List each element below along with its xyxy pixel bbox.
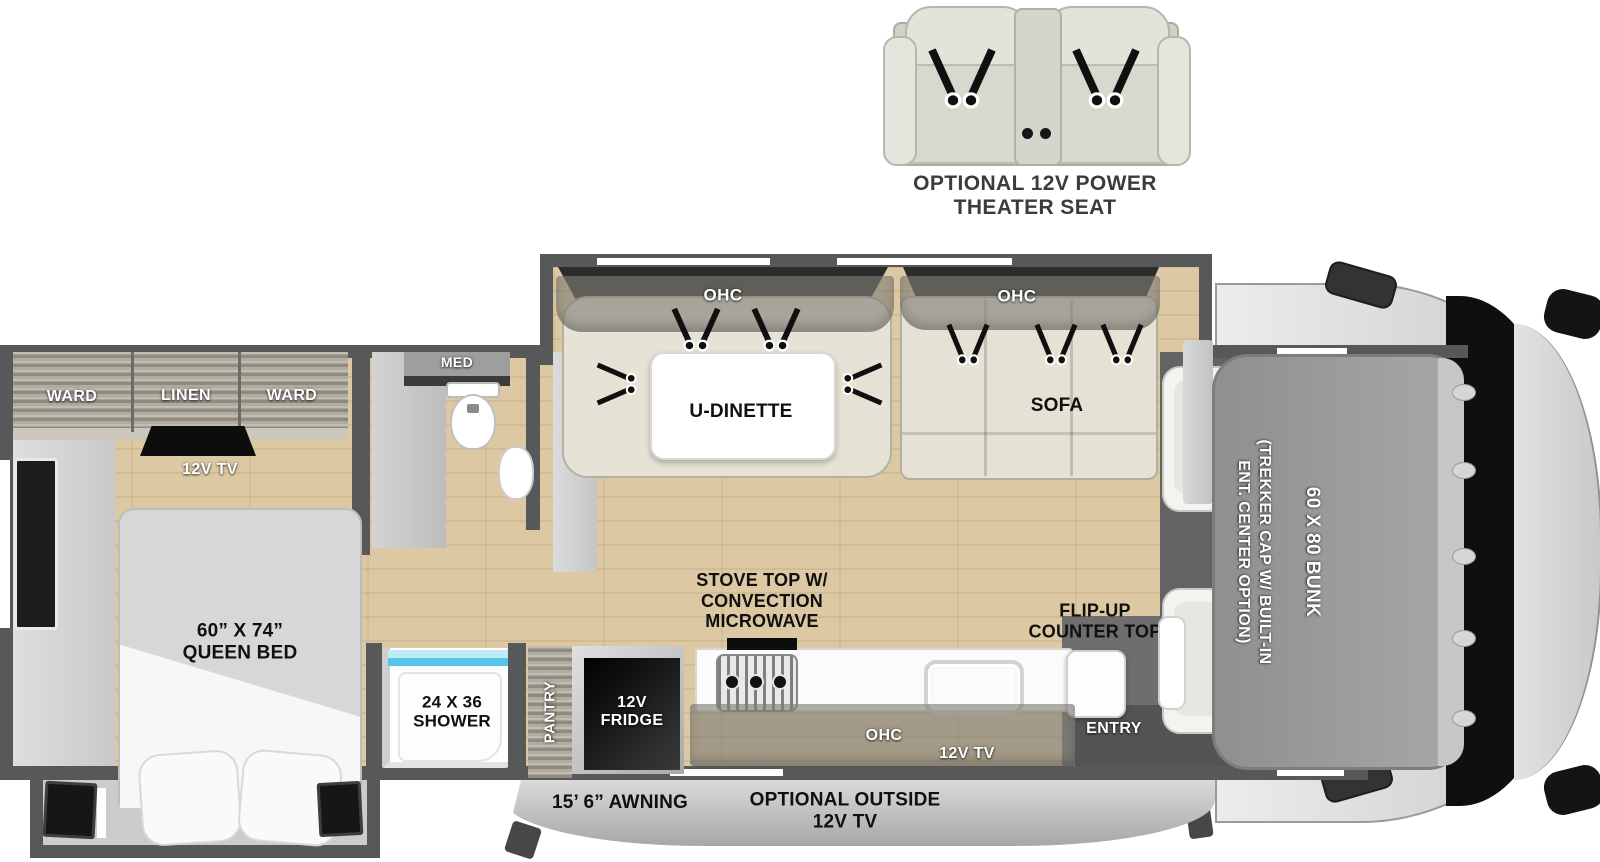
theater-armrest-left: [883, 36, 917, 166]
sofa-label: SOFA: [1031, 395, 1084, 417]
theater-cupholder-right: [1040, 128, 1051, 139]
bed-pillow-left: [137, 749, 243, 848]
seat-belt-icon: [840, 356, 884, 412]
toilet-bowl: [450, 394, 496, 450]
fridge-label: 12V FRIDGE: [601, 694, 664, 730]
window-rear-wall: [0, 460, 10, 628]
bunk-size-label: 60 X 80 BUNK: [1301, 487, 1323, 617]
kitchen-tv-label: 12V TV: [939, 745, 995, 763]
stove-burner: [772, 674, 788, 690]
linen-label: LINEN: [161, 387, 211, 405]
bed-slide-window-left: [43, 781, 98, 840]
window-bottom-galley: [670, 769, 783, 776]
theater-seat-label: OPTIONAL 12V POWER THEATER SEAT: [913, 172, 1157, 220]
bunk-clip: [1452, 548, 1476, 565]
entry-label: ENTRY: [1086, 720, 1142, 738]
window-slideout-left: [597, 258, 770, 265]
bathroom-sink: [498, 446, 534, 500]
bunk-clip: [1452, 710, 1476, 727]
microwave: [727, 638, 797, 650]
awning-arm-left: [504, 820, 542, 860]
seat-belt-icon: [664, 306, 728, 354]
wall-bath-right: [526, 352, 540, 530]
bed-slide-wall-right: [367, 766, 380, 858]
cabinet-divider: [131, 352, 134, 432]
theater-console: [1014, 8, 1062, 166]
queen-bed-label: 60” X 74” QUEEN BED: [183, 620, 298, 663]
slide-wall-panel-right: [1183, 340, 1213, 504]
cab-nose: [1514, 324, 1600, 780]
seat-belt-icon: [940, 322, 996, 368]
bunk-clip: [1452, 384, 1476, 401]
flip-counter-label: FLIP-UP COUNTER TOP: [1029, 600, 1162, 641]
med-label: MED: [441, 355, 473, 371]
theater-armrest-right: [1157, 36, 1191, 166]
pantry-label: PANTRY: [541, 681, 558, 743]
flip-up-counter: [1066, 650, 1126, 718]
seat-belt-icon: [1062, 46, 1150, 112]
cab-corner-top: [1541, 286, 1600, 343]
entry-door: [1158, 616, 1186, 710]
wall-shower-right: [508, 643, 526, 766]
bed-slide-wall-bottom: [30, 845, 380, 858]
ward-left-label: WARD: [47, 388, 97, 406]
window-bottom-entry: [1277, 769, 1344, 776]
bedroom-tv-label: 12V TV: [182, 461, 238, 479]
bunk-option-label: (TREKKER CAP W/ BUILT-IN ENT. CENTER OPT…: [1232, 440, 1274, 665]
cabinet-divider: [238, 352, 241, 432]
dinette-label: U-DINETTE: [689, 401, 792, 423]
window-slideout-right: [837, 258, 1012, 265]
awning-label: 15’ 6” AWNING: [552, 792, 688, 814]
ward-right-label: WARD: [267, 387, 317, 405]
shower-glass: [388, 650, 508, 666]
seat-belt-icon: [918, 46, 1006, 112]
seat-belt-icon: [1094, 322, 1150, 368]
sofa-front-edge: [902, 432, 1156, 435]
toilet-seat-button: [467, 404, 479, 413]
bunk-clip: [1452, 630, 1476, 647]
wall-slideout-left: [540, 254, 553, 365]
bed-slide-frame-left: [97, 788, 106, 838]
dinette-ohc-label: OHC: [704, 285, 743, 304]
seat-belt-icon: [595, 356, 639, 412]
bedroom-tv: [140, 426, 256, 456]
wall-shower-left: [366, 643, 382, 766]
stove-burner: [748, 674, 764, 690]
rv-floorplan: OPTIONAL 12V POWER THEATER SEAT: [0, 0, 1600, 862]
stove-label: STOVE TOP W/ CONVECTION MICROWAVE: [696, 570, 827, 632]
sofa-ohc-label: OHC: [998, 286, 1037, 305]
seat-belt-icon: [1028, 322, 1084, 368]
bedroom-rear-window: [14, 458, 58, 630]
seat-belt-icon: [744, 306, 808, 354]
kitchen-ohc-label: OHC: [866, 727, 903, 745]
bunk-clip: [1452, 462, 1476, 479]
cab-corner-bottom: [1541, 762, 1600, 819]
outside-tv-label: OPTIONAL OUTSIDE 12V TV: [750, 789, 941, 832]
shower-label: 24 X 36 SHOWER: [413, 693, 491, 732]
stove-burner: [724, 674, 740, 690]
theater-cupholder-left: [1022, 128, 1033, 139]
bed-slide-window-right: [317, 781, 364, 837]
